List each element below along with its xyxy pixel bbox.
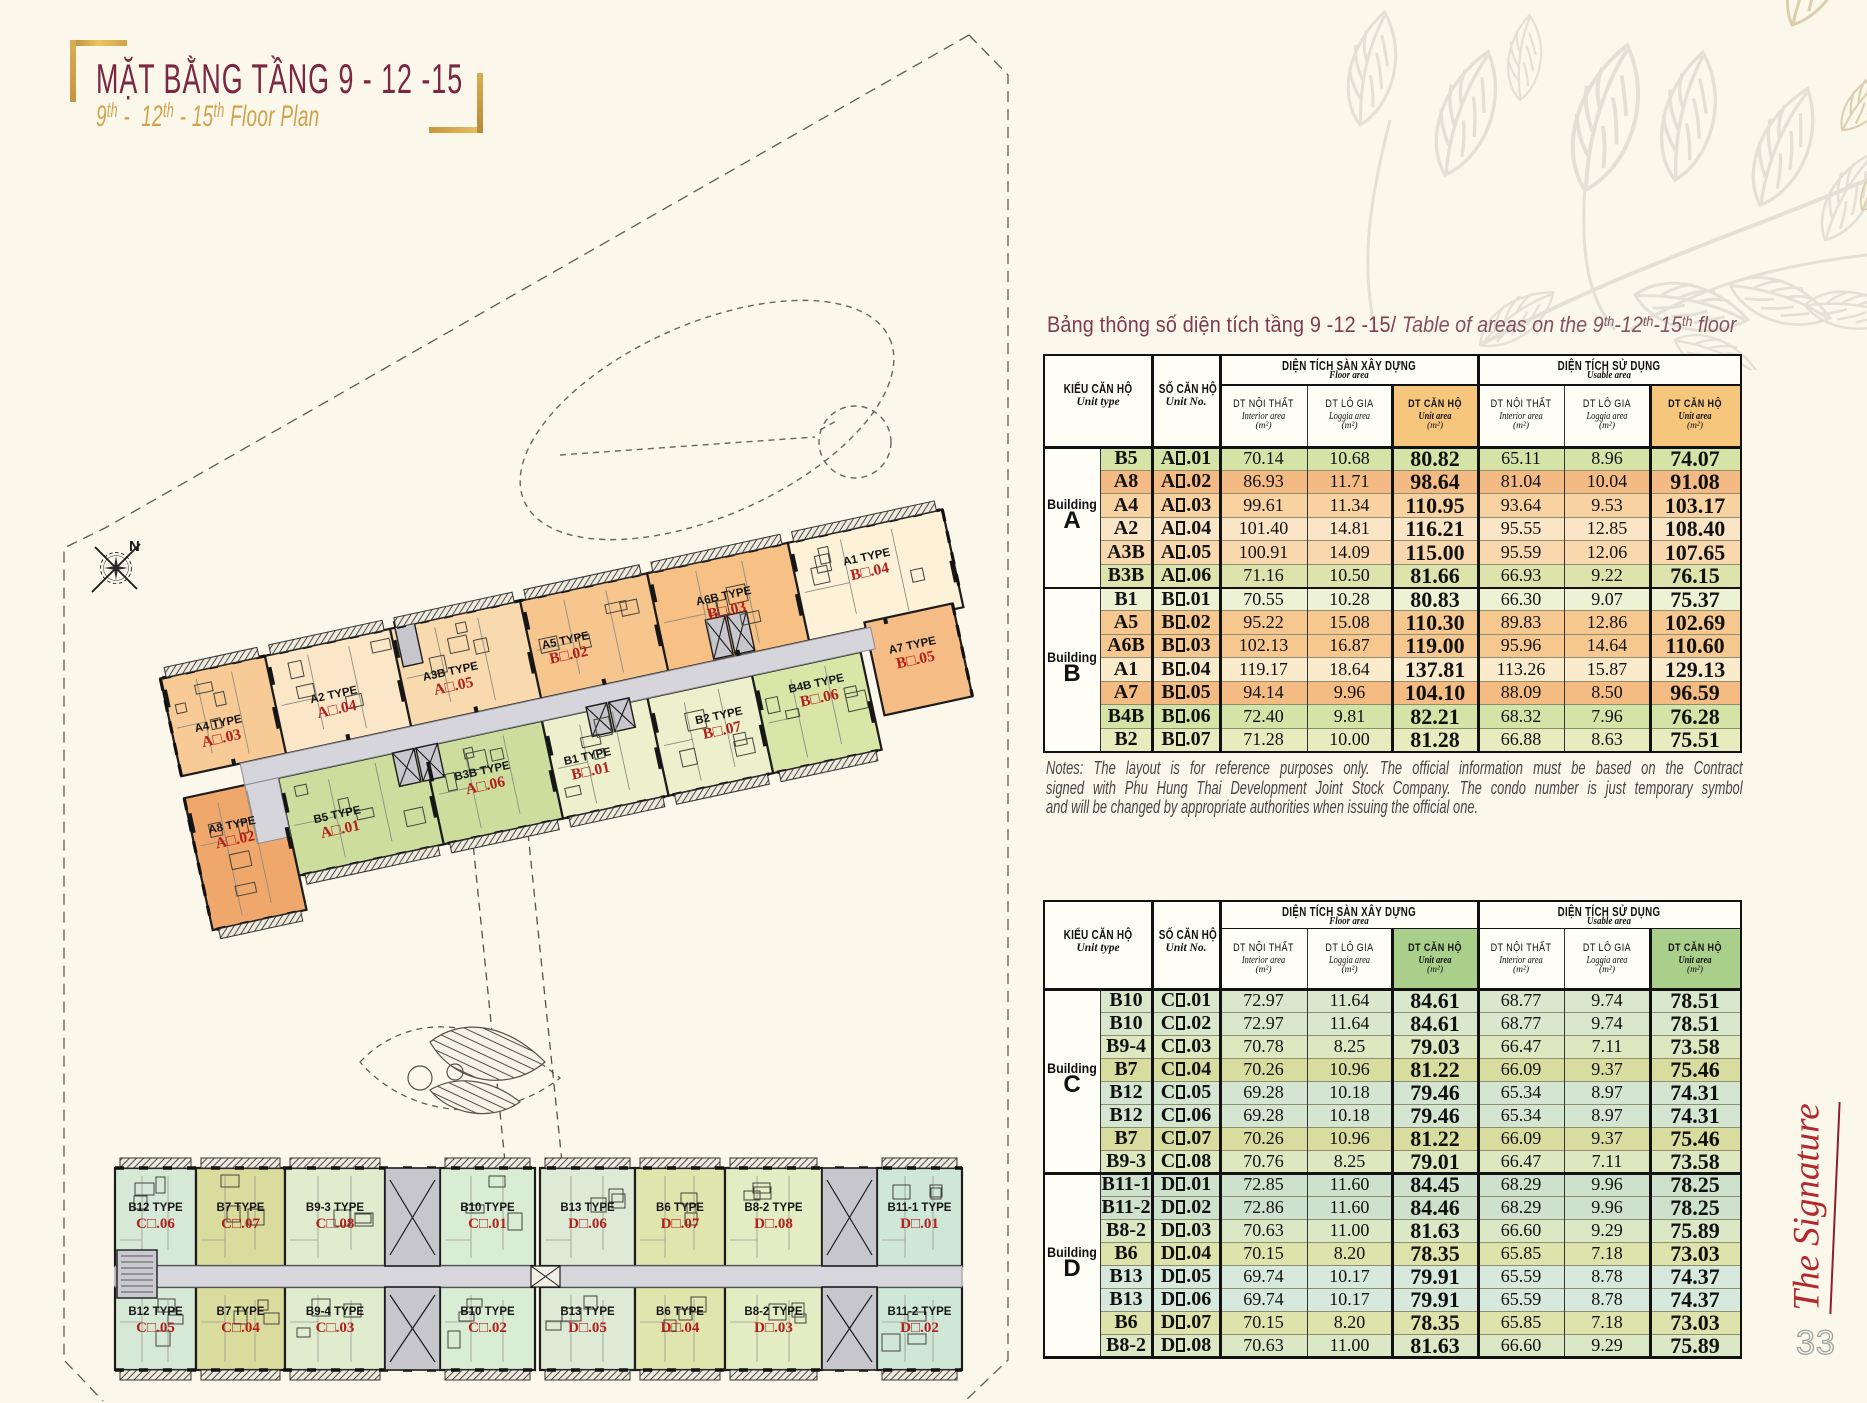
svg-text:D□.06: D□.06 xyxy=(568,1216,607,1232)
svg-text:B8-2 TYPE: B8-2 TYPE xyxy=(744,1202,802,1214)
svg-text:B12 TYPE: B12 TYPE xyxy=(128,1306,183,1318)
svg-text:B6 TYPE: B6 TYPE xyxy=(656,1202,704,1214)
svg-text:D□.01: D□.01 xyxy=(900,1216,939,1232)
svg-text:B7 TYPE: B7 TYPE xyxy=(217,1306,265,1318)
svg-text:B9-4 TYPE: B9-4 TYPE xyxy=(306,1306,364,1318)
svg-text:D□.05: D□.05 xyxy=(568,1320,607,1336)
svg-text:C□.03: C□.03 xyxy=(316,1320,355,1336)
svg-text:C□.02: C□.02 xyxy=(468,1320,507,1336)
svg-text:B13 TYPE: B13 TYPE xyxy=(560,1202,615,1214)
svg-text:D□.07: D□.07 xyxy=(661,1216,700,1232)
svg-text:C□.07: C□.07 xyxy=(221,1216,260,1232)
svg-text:B12 TYPE: B12 TYPE xyxy=(128,1202,183,1214)
svg-text:B11-2 TYPE: B11-2 TYPE xyxy=(888,1306,952,1318)
svg-text:B8-2 TYPE: B8-2 TYPE xyxy=(744,1306,802,1318)
svg-text:B10 TYPE: B10 TYPE xyxy=(460,1202,515,1214)
svg-text:D□.08: D□.08 xyxy=(754,1216,793,1232)
svg-text:B6 TYPE: B6 TYPE xyxy=(656,1306,704,1318)
svg-text:D□.02: D□.02 xyxy=(900,1320,939,1336)
svg-text:C□.04: C□.04 xyxy=(221,1320,260,1336)
svg-text:B10 TYPE: B10 TYPE xyxy=(460,1306,515,1318)
svg-text:D□.04: D□.04 xyxy=(661,1320,700,1336)
svg-text:B7 TYPE: B7 TYPE xyxy=(217,1202,265,1214)
svg-text:D□.03: D□.03 xyxy=(754,1320,793,1336)
svg-text:N: N xyxy=(129,538,140,555)
svg-text:C□.05: C□.05 xyxy=(136,1320,175,1336)
svg-text:C□.06: C□.06 xyxy=(136,1216,175,1232)
svg-text:B13 TYPE: B13 TYPE xyxy=(560,1306,615,1318)
svg-text:B9-3 TYPE: B9-3 TYPE xyxy=(306,1202,364,1214)
svg-text:C□.08: C□.08 xyxy=(316,1216,355,1232)
svg-text:B11-1 TYPE: B11-1 TYPE xyxy=(888,1202,952,1214)
svg-text:C□.01: C□.01 xyxy=(468,1216,507,1232)
